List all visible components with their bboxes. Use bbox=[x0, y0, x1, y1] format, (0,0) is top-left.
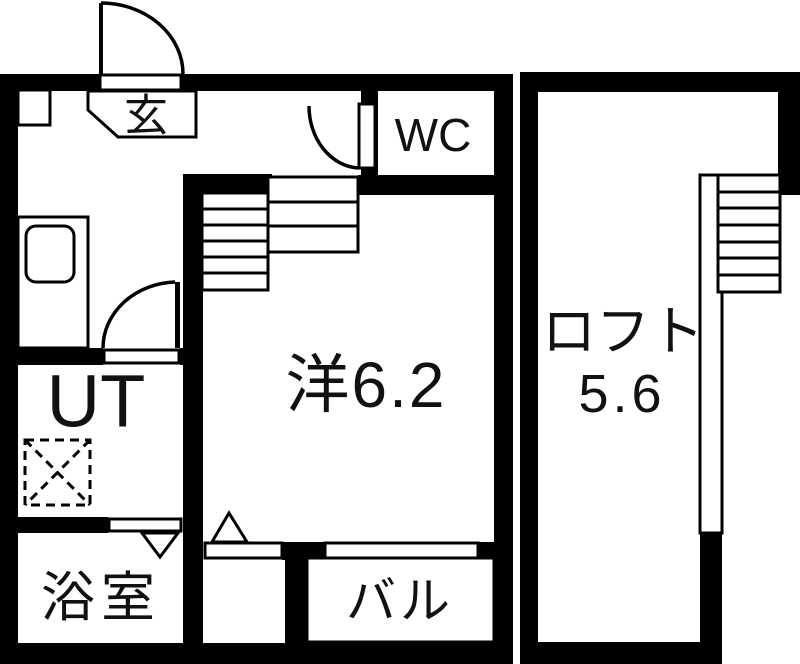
wall-wc-bottom bbox=[358, 175, 495, 195]
kitchen-sink bbox=[26, 226, 74, 282]
label-loft-size: 5.6 bbox=[578, 364, 665, 424]
window-left bbox=[205, 543, 282, 558]
entrance-door-opening bbox=[100, 75, 181, 90]
wall-bottom bbox=[0, 643, 513, 664]
label-wc: WC bbox=[395, 109, 472, 161]
washer-pan-icon bbox=[25, 440, 90, 505]
wall-top bbox=[0, 74, 513, 91]
label-balcony: バル bbox=[346, 573, 454, 629]
shoe-cabinet bbox=[18, 90, 50, 125]
wall-right bbox=[494, 74, 513, 664]
hall-door-swing-icon bbox=[103, 282, 175, 348]
wall-left bbox=[0, 74, 18, 664]
label-bathroom: 浴室 bbox=[41, 568, 161, 628]
label-loft: ロフト bbox=[542, 302, 704, 362]
room-door-triangle-icon bbox=[212, 513, 247, 542]
wall-ut-bath bbox=[18, 517, 108, 533]
window-balcony bbox=[325, 543, 478, 558]
wall-balcony-left bbox=[285, 560, 307, 643]
bath-door-opening bbox=[109, 519, 181, 531]
label-genkan: 玄 bbox=[124, 92, 168, 141]
wall-loft-top bbox=[520, 72, 800, 92]
entrance-door-swing-icon bbox=[101, 3, 183, 74]
wc-door-swing-icon bbox=[309, 106, 358, 168]
staircase bbox=[202, 177, 358, 290]
floor-plan: 玄 WC UT 浴室 洋6.2 バル ロフト 5.6 bbox=[0, 0, 800, 664]
wall-stairs-top bbox=[185, 174, 272, 193]
floor-plan-canvas: 玄 WC UT 浴室 洋6.2 バル ロフト 5.6 bbox=[0, 0, 800, 664]
wall-loft-left bbox=[520, 72, 538, 664]
wall-main-divider bbox=[183, 174, 203, 643]
wc-door-leaf bbox=[359, 104, 375, 168]
label-ut: UT bbox=[47, 360, 146, 443]
kitchen bbox=[18, 90, 88, 348]
stairs-upper-run bbox=[268, 177, 358, 252]
entrance-door-leaf bbox=[99, 3, 103, 75]
wall-loft-right-lower bbox=[700, 533, 722, 642]
wall-loft-bottom bbox=[520, 642, 722, 664]
label-western-room: 洋6.2 bbox=[286, 349, 447, 421]
hall-door-leaf bbox=[175, 282, 180, 348]
bath-door-triangle-icon bbox=[142, 533, 178, 557]
loft-ladder bbox=[700, 175, 780, 533]
